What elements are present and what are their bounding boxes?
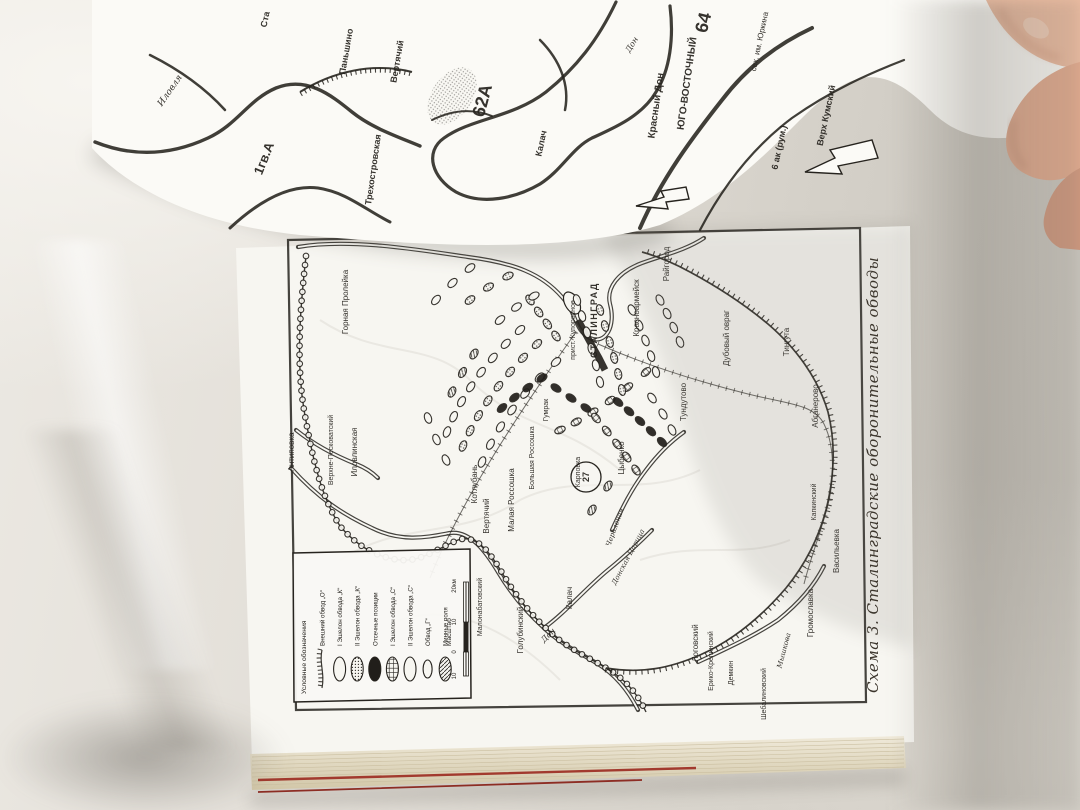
legend-entry-label: II Эшелон обвода „К“ [355,586,362,646]
legend-symbol-stippled-oval [351,657,363,681]
map-label: 27 [581,472,591,482]
map-label: Ерико-Крепинский [707,631,715,691]
map-legend: Условные обозначенияВнешний обвод „О“I Э… [293,549,471,702]
legend-symbol-small-open-oval [423,660,432,678]
photo-of-open-book: 27СТАЛИНГРАДприст. КупоросноеКрасноармей… [0,0,1080,810]
legend-entry-label: II Эшелон обвода „С“ [408,585,415,646]
map-label: Логовский [691,624,700,662]
legend-entry-label: I Эшелон обвода „К“ [337,588,344,646]
legend-entry-label: Отсечные позиции [372,592,379,646]
map-label: Шебалиновский [760,668,768,720]
map-label: Котлубань [470,465,479,504]
map-label: Цыбенко [617,441,626,475]
legend-symbol-open-oval [334,657,346,681]
legend-entry-label: I Эшелон обвода „С“ [390,587,397,646]
map-label: Калач [565,587,574,609]
map-label: Малая Россошка [507,468,516,532]
map-label: Демкин [728,661,735,685]
map-label: Голубинский [516,607,525,654]
legend-scale-tick: 10 [452,672,458,679]
legend-symbol-hatched-oval [439,657,451,681]
map-label: Гумрак [543,398,550,421]
legend-symbol-solid-oval [369,657,381,681]
map-label: Малонабатовский [476,578,484,636]
map-caption: Схема 3. Сталинградские оборонительные о… [864,236,892,714]
legend-symbol-open-oval [404,657,416,681]
shadow-bottom-left [0,686,320,810]
shadow-right [892,0,1080,810]
map-label: Вертячий [482,498,491,533]
map-label: Горная Пролейка [341,269,350,334]
legend-scale-tick: 10 [452,618,458,625]
legend-entry-label: Обвод „Г“ [425,618,432,646]
map-label: Большая Россошка [529,426,536,489]
map-label: Карповка [575,457,582,487]
legend-title: Условные обозначения [300,620,308,694]
map-label: Иловлинская [350,427,359,476]
map-label: Верхне-Песковатский [327,415,335,485]
map-label: прист. Купоросное [570,300,577,360]
legend-scale-tick: 20км [452,579,458,592]
map-label: Антиповка [287,432,296,472]
legend-symbol-grid-oval [386,657,398,681]
legend-entry-label: Внешний обвод „О“ [320,590,327,646]
map-label: СТАЛИНГРАД [589,282,599,358]
